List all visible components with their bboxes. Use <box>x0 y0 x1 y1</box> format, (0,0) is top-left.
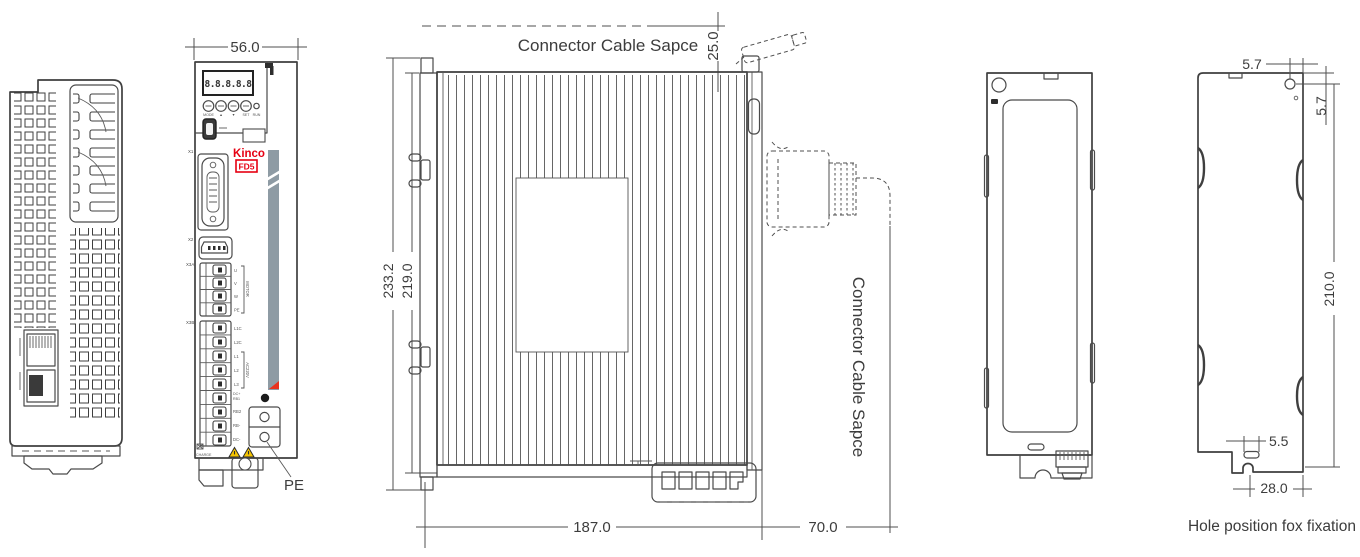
heatsink-base <box>437 465 747 477</box>
fixation-hole-icon <box>1285 79 1295 89</box>
rj45-ports-icon <box>20 330 58 406</box>
up-button-label: ▲ <box>219 113 223 117</box>
warning-triangle-icon <box>229 448 254 458</box>
heatsink-cutout <box>516 178 628 352</box>
drawing-svg: 56.0 8.8.8.8.8 MODE ▲ <box>0 0 1360 557</box>
terminal-dc-minus: DC- <box>233 437 241 442</box>
fixation-view: 5.7 5.7 210.0 5.5 28.0 Hole position fox… <box>1188 56 1356 535</box>
heatsink-stripe-icon <box>266 150 281 390</box>
keypad: MODE ▲ ▼ SET RUN <box>203 101 261 117</box>
heatsink-body <box>437 72 747 477</box>
dim-top-clearance-value: 25.0 <box>705 31 722 60</box>
dim-slot-from-right-value: 28.0 <box>1260 480 1287 496</box>
vent-panel-top-icon <box>70 85 118 222</box>
motor-bracket-label: MOTOR <box>245 281 250 297</box>
dim-hole-span-value: 210.0 <box>1321 271 1337 306</box>
terminal-l1c: L1C <box>234 326 242 331</box>
back-panel <box>1003 100 1077 432</box>
dim-hole-span: 210.0 <box>1305 84 1340 467</box>
back-top-slot-icon <box>1044 73 1058 79</box>
cable-space-right-label: Connector Cable Sapce <box>849 277 868 458</box>
back-view <box>985 73 1095 479</box>
back-side-tabs-icon <box>985 150 1095 408</box>
back-hole-icon <box>992 78 1006 92</box>
terminal-l2c: L2C <box>234 340 242 345</box>
x1-connector[interactable] <box>198 154 228 230</box>
dim-depth: 187.0 <box>416 470 770 548</box>
dim-hole-from-right: 5.7 <box>1242 56 1318 79</box>
terminal-rb1: RB1 <box>233 397 240 401</box>
charge-label: CHARGE <box>196 453 212 457</box>
dim-cable-clearance-value: 70.0 <box>808 519 837 536</box>
fixation-side-notches-icon <box>1198 148 1303 415</box>
ac-bracket-label: AC220V <box>245 362 250 378</box>
top-hook-mark2-icon <box>270 66 274 75</box>
x1-label: X1 <box>188 149 194 154</box>
mode-button[interactable] <box>203 101 214 112</box>
down-button-label: ▼ <box>232 113 236 117</box>
cable-space-top-label: Connector Cable Sapce <box>518 36 699 55</box>
top-cable-connector-dashed-icon <box>741 30 808 63</box>
pe-callout-label: PE <box>284 477 304 494</box>
x3a-label: X3A <box>186 262 194 267</box>
dim-front-width: 56.0 <box>185 38 307 60</box>
terminal-u: U <box>234 268 237 273</box>
back-mark-icon <box>991 99 998 104</box>
terminal-v: V <box>234 281 237 286</box>
set-button-label: SET <box>243 113 251 117</box>
pe-leader-line <box>267 442 291 477</box>
front-view: 56.0 8.8.8.8.8 MODE ▲ <box>185 38 307 494</box>
front-bottom-din-icon <box>199 458 263 488</box>
terminal-l1: L1 <box>234 354 239 359</box>
terminal-pe: PE <box>234 308 240 313</box>
top-cable-lead-dashed <box>736 57 744 64</box>
mode-button-label: MODE <box>203 113 214 117</box>
din-clip-icon <box>12 446 120 474</box>
run-led-icon <box>254 103 259 108</box>
terminal-rb2: RB2 <box>233 409 242 414</box>
dim-body-height: 219.0 <box>399 73 437 473</box>
dim-depth-value: 187.0 <box>573 519 611 536</box>
terminal-l2: L2 <box>234 368 239 373</box>
seven-segment-display: 8.8.8.8.8 <box>203 71 253 95</box>
x3b-terminal-block[interactable] <box>200 321 231 446</box>
terminal-dc-plus: DC+ <box>233 392 240 396</box>
terminal-l3: L3 <box>234 382 239 387</box>
back-bottom-icon <box>1020 444 1092 479</box>
dimension-drawing-page: 56.0 8.8.8.8.8 MODE ▲ <box>0 0 1360 557</box>
terminal-labels: U V W PE MOTOR L1C L2C L1 L2 L3 AC220V D… <box>233 266 250 442</box>
fixation-small-hole-icon <box>1294 96 1298 100</box>
perspective-view <box>10 80 122 474</box>
vent-grid-right-icon <box>70 228 120 418</box>
model-label: FD5 <box>238 162 254 172</box>
x3a-terminal-block[interactable] <box>200 263 231 316</box>
pe-screw-terminals[interactable] <box>249 394 280 447</box>
dim-total-height-value: 233.2 <box>380 263 396 298</box>
dim-hole-from-top-value: 5.7 <box>1313 96 1329 116</box>
mini-usb-port[interactable] <box>203 119 227 139</box>
vent-grid-left-icon <box>14 90 56 328</box>
bottom-connector-block-icon <box>630 461 756 502</box>
side-cable-connector-dashed-icon <box>767 142 890 236</box>
x2-connector[interactable] <box>199 237 232 259</box>
dim-front-width-value: 56.0 <box>230 39 259 56</box>
set-button[interactable] <box>241 101 252 112</box>
dim-slot-width-value: 5.5 <box>1269 433 1289 449</box>
fixation-caption: Hole position fox fixation <box>1188 518 1356 535</box>
fixation-slot-icon <box>1244 452 1259 459</box>
terminal-rb-minus: RB- <box>233 423 241 428</box>
up-button[interactable] <box>216 101 227 112</box>
brand-logo: Kinco <box>233 148 265 160</box>
run-led-label: RUN <box>253 113 261 117</box>
side-view: Connector Cable Sapce 25.0 233.2 219.0 <box>380 12 898 548</box>
dim-cable-clearance: 70.0 <box>762 519 898 536</box>
dim-slot-from-right: 28.0 <box>1233 475 1312 497</box>
terminal-w: W <box>234 294 238 299</box>
front-tab-icon <box>243 129 265 142</box>
dim-hole-from-right-value: 5.7 <box>1242 56 1262 72</box>
down-button[interactable] <box>228 101 239 112</box>
display-digits: 8.8.8.8.8 <box>205 79 253 90</box>
model-badge: FD5 <box>236 160 257 172</box>
dim-body-height-value: 219.0 <box>399 263 415 298</box>
top-latch-icon <box>742 56 759 72</box>
x3b-label: X3B <box>186 320 194 325</box>
x2-label: X2 <box>188 237 194 242</box>
dim-slot-width: 5.5 <box>1226 433 1289 452</box>
fixation-outline <box>1198 73 1303 473</box>
